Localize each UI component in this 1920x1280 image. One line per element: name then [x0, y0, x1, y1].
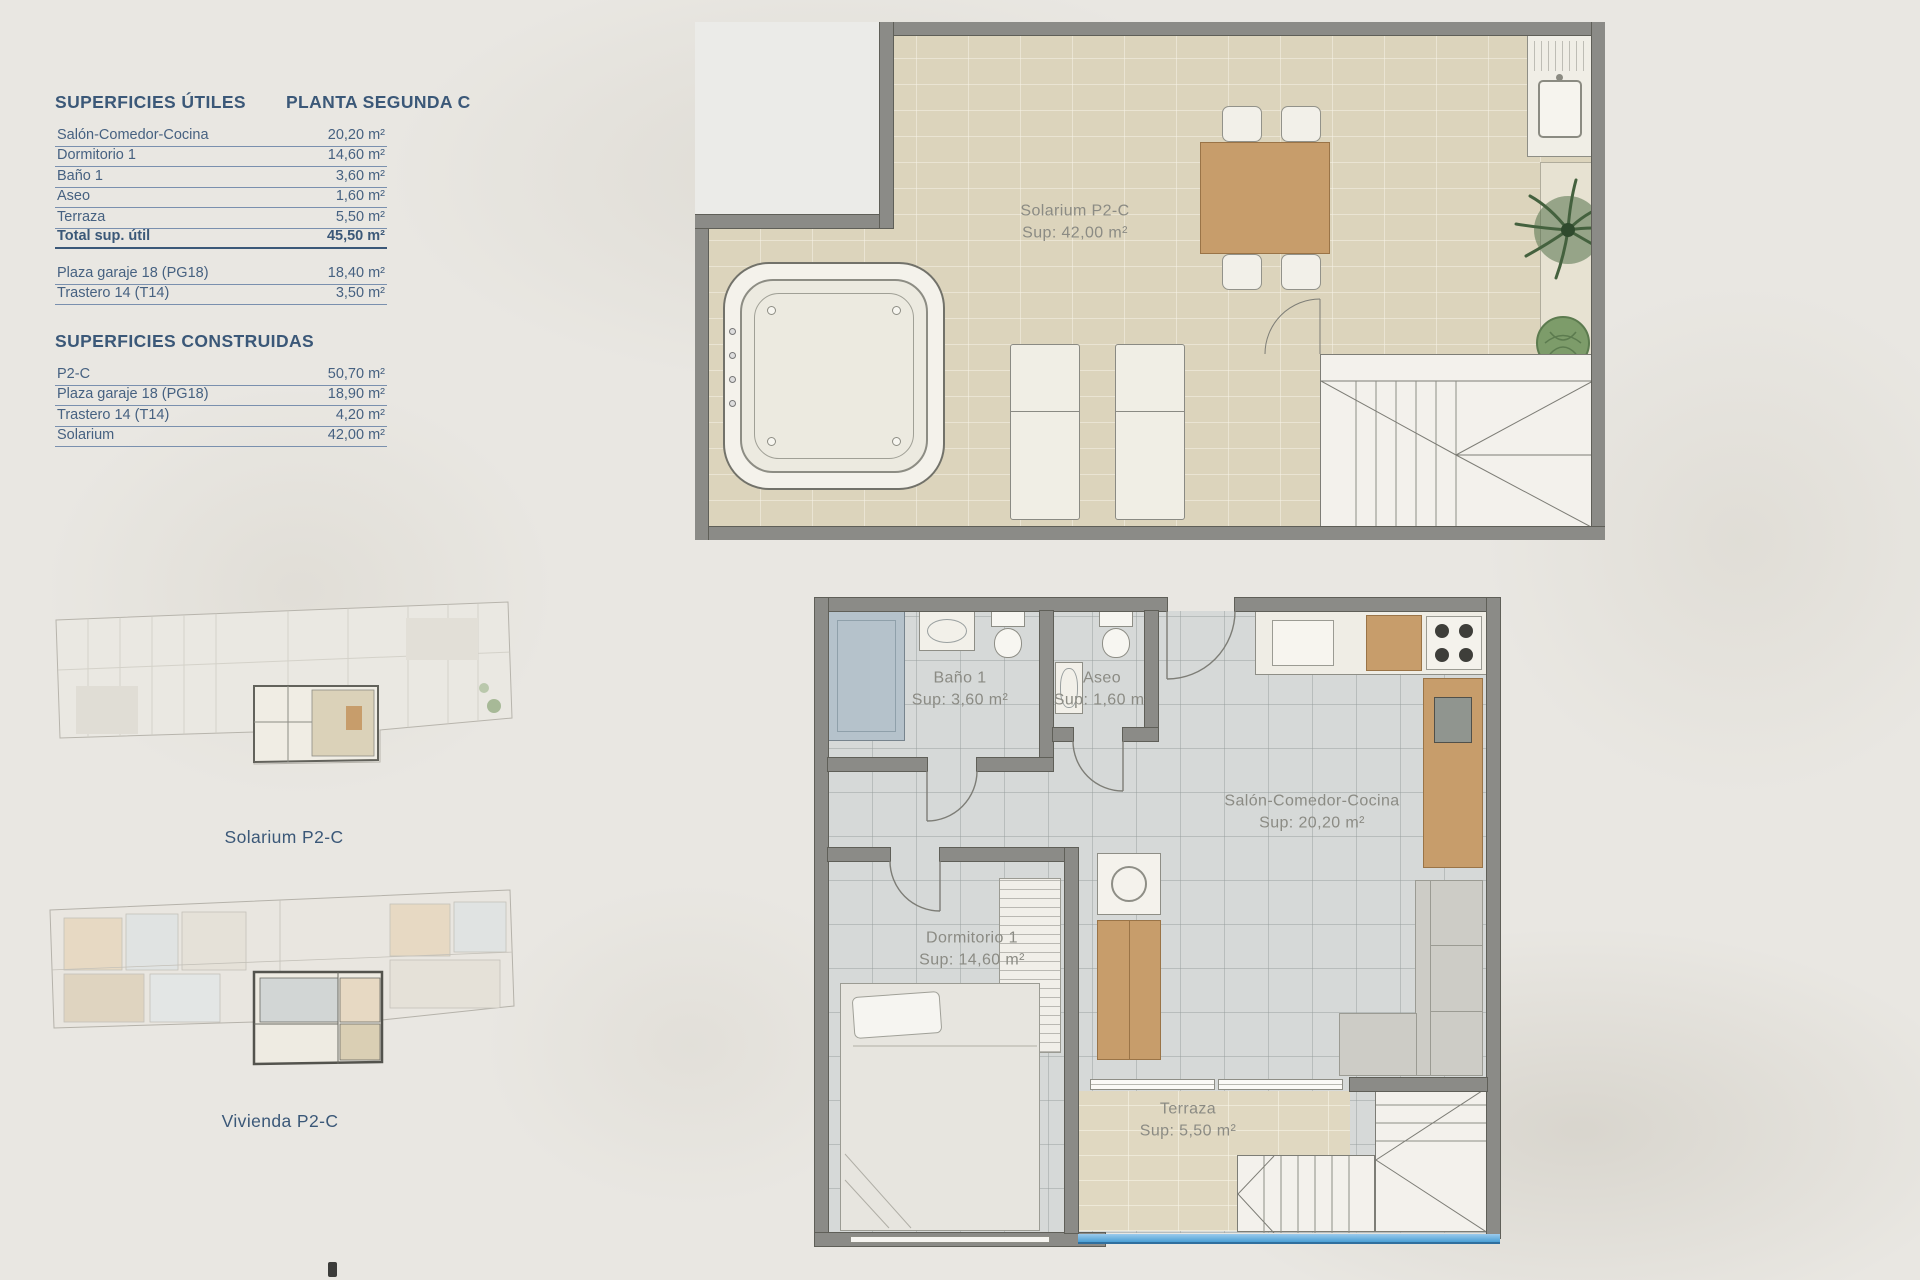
- mini-plan-vivienda-drawing: [40, 874, 520, 1092]
- jacuzzi-jet: [767, 437, 776, 446]
- floor-plan-sheet: { "tables": { "utiles": { "title": "SUPE…: [0, 0, 1920, 1280]
- faucet: [1556, 74, 1563, 81]
- partial-logo-mark: [328, 1262, 337, 1277]
- wall-segment: [977, 758, 1053, 771]
- stair-flight: [1237, 1155, 1375, 1232]
- mini-plan-solarium: Solarium P2-C: [48, 590, 520, 848]
- table-row: Trastero 14 (T14)3,50 m²: [55, 285, 387, 306]
- wall-segment: [1123, 728, 1158, 741]
- kitchen-sink: [1272, 620, 1334, 666]
- sliding-glass-door: [1090, 1079, 1215, 1090]
- table-row: Trastero 14 (T14)4,20 m²: [55, 406, 387, 427]
- jacuzzi-jet: [892, 306, 901, 315]
- shower: [828, 611, 905, 741]
- cutting-board: [1366, 615, 1422, 671]
- outdoor-kitchen-counter: [1527, 35, 1592, 157]
- shower-tray: [837, 620, 896, 732]
- table-row: Plaza garaje 18 (PG18)18,40 m²: [55, 264, 387, 285]
- sun-lounger: [1010, 344, 1080, 520]
- chair: [1222, 106, 1262, 142]
- kitchen-counter: [1255, 611, 1487, 675]
- wall-segment: [815, 598, 1167, 611]
- jacuzzi-control: [729, 352, 736, 359]
- wall-segment: [828, 848, 890, 861]
- sun-lounger: [1115, 344, 1185, 520]
- window: [850, 1236, 1050, 1243]
- wall-segment: [815, 598, 828, 1246]
- pillow: [852, 991, 943, 1039]
- planter-bed: [1540, 162, 1592, 377]
- roof-void: [695, 22, 881, 229]
- bed: [840, 983, 1040, 1231]
- wall-segment: [1040, 611, 1053, 771]
- jacuzzi-control: [729, 328, 736, 335]
- chair: [1222, 254, 1262, 290]
- wall-segment: [940, 848, 1078, 861]
- table-row: Solarium42,00 m²: [55, 427, 387, 448]
- wall-segment: [1487, 598, 1500, 1238]
- table-title-utiles: SUPERFICIES ÚTILES: [55, 92, 246, 113]
- room-label-dormitorio: Dormitorio 1 Sup: 14,60 m²: [919, 928, 1025, 973]
- room-label-bano: Baño 1 Sup: 3,60 m²: [912, 668, 1008, 713]
- room-label-aseo: Aseo Sup: 1,60 m²: [1054, 668, 1150, 713]
- vivienda-floor-plan: Baño 1 Sup: 3,60 m² Aseo Sup: 1,60 m² Sa…: [815, 598, 1500, 1246]
- mini-plan-vivienda: Vivienda P2-C: [40, 874, 520, 1132]
- jacuzzi: [723, 262, 945, 490]
- island-sink: [1434, 697, 1472, 743]
- table-row: Baño 13,60 m²: [55, 167, 387, 188]
- sliding-glass-door: [1218, 1079, 1343, 1090]
- wall-segment: [695, 215, 708, 540]
- mini-plan-solarium-drawing: [48, 590, 520, 808]
- mini-plan-vivienda-caption: Vivienda P2-C: [40, 1111, 520, 1132]
- wall-segment: [1592, 22, 1605, 540]
- drying-rack: [1534, 41, 1586, 71]
- table-row: Salón-Comedor-Cocina20,20 m²: [55, 126, 387, 147]
- washing-machine: [1097, 853, 1161, 915]
- bathroom-sink: [919, 611, 975, 651]
- wall-segment: [1053, 728, 1073, 741]
- wall-segment: [828, 758, 927, 771]
- table-row: Dormitorio 114,60 m²: [55, 147, 387, 168]
- solarium-floor-plan: Solarium P2-C Sup: 42,00 m²: [695, 22, 1605, 540]
- mini-plan-solarium-caption: Solarium P2-C: [48, 827, 520, 848]
- table-row-total: Total sup. útil45,50 m²: [55, 229, 387, 250]
- chair: [1281, 106, 1321, 142]
- wall-segment: [695, 527, 1605, 540]
- dining-table: [1200, 142, 1330, 254]
- jacuzzi-control: [729, 400, 736, 407]
- table-subtitle-planta: PLANTA SEGUNDA C: [286, 92, 471, 113]
- table-row: P2-C50,70 m²: [55, 365, 387, 386]
- wall-segment: [695, 215, 893, 228]
- room-label-solarium: Solarium P2-C Sup: 42,00 m²: [1020, 201, 1129, 246]
- wall-segment: [1350, 1078, 1487, 1091]
- wall-segment: [880, 22, 1605, 35]
- table-title-construidas: SUPERFICIES CONSTRUIDAS: [55, 331, 387, 352]
- room-label-salon: Salón-Comedor-Cocina Sup: 20,20 m²: [1224, 791, 1399, 836]
- stair-landing: [1375, 1086, 1487, 1232]
- sofa: [1415, 880, 1483, 1076]
- cooktop: [1426, 616, 1482, 670]
- room-label-terraza: Terraza Sup: 5,50 m²: [1140, 1099, 1236, 1144]
- stairwell: [1320, 354, 1592, 527]
- jacuzzi-control: [729, 376, 736, 383]
- glass-balustrade: [1078, 1234, 1500, 1244]
- table-row: Plaza garaje 18 (PG18)18,90 m²: [55, 386, 387, 407]
- washer-drum: [1111, 866, 1147, 902]
- surface-tables: SUPERFICIES ÚTILES PLANTA SEGUNDA C Saló…: [55, 92, 387, 447]
- table-row: Aseo1,60 m²: [55, 188, 387, 209]
- toilet: [1093, 611, 1139, 661]
- chair: [1281, 254, 1321, 290]
- jacuzzi-jet: [892, 437, 901, 446]
- toilet: [985, 611, 1031, 661]
- table-row: Terraza5,50 m²: [55, 208, 387, 229]
- jacuzzi-basin: [754, 293, 914, 459]
- sink-basin: [927, 619, 967, 643]
- sofa-chaise: [1339, 1013, 1417, 1076]
- kitchen-island: [1423, 678, 1483, 868]
- wall-segment: [1235, 598, 1500, 611]
- wall-segment: [1065, 848, 1078, 1233]
- wardrobe-wood: [1097, 920, 1161, 1060]
- jacuzzi-jet: [767, 306, 776, 315]
- outdoor-sink: [1538, 80, 1582, 138]
- wall-segment: [880, 22, 893, 228]
